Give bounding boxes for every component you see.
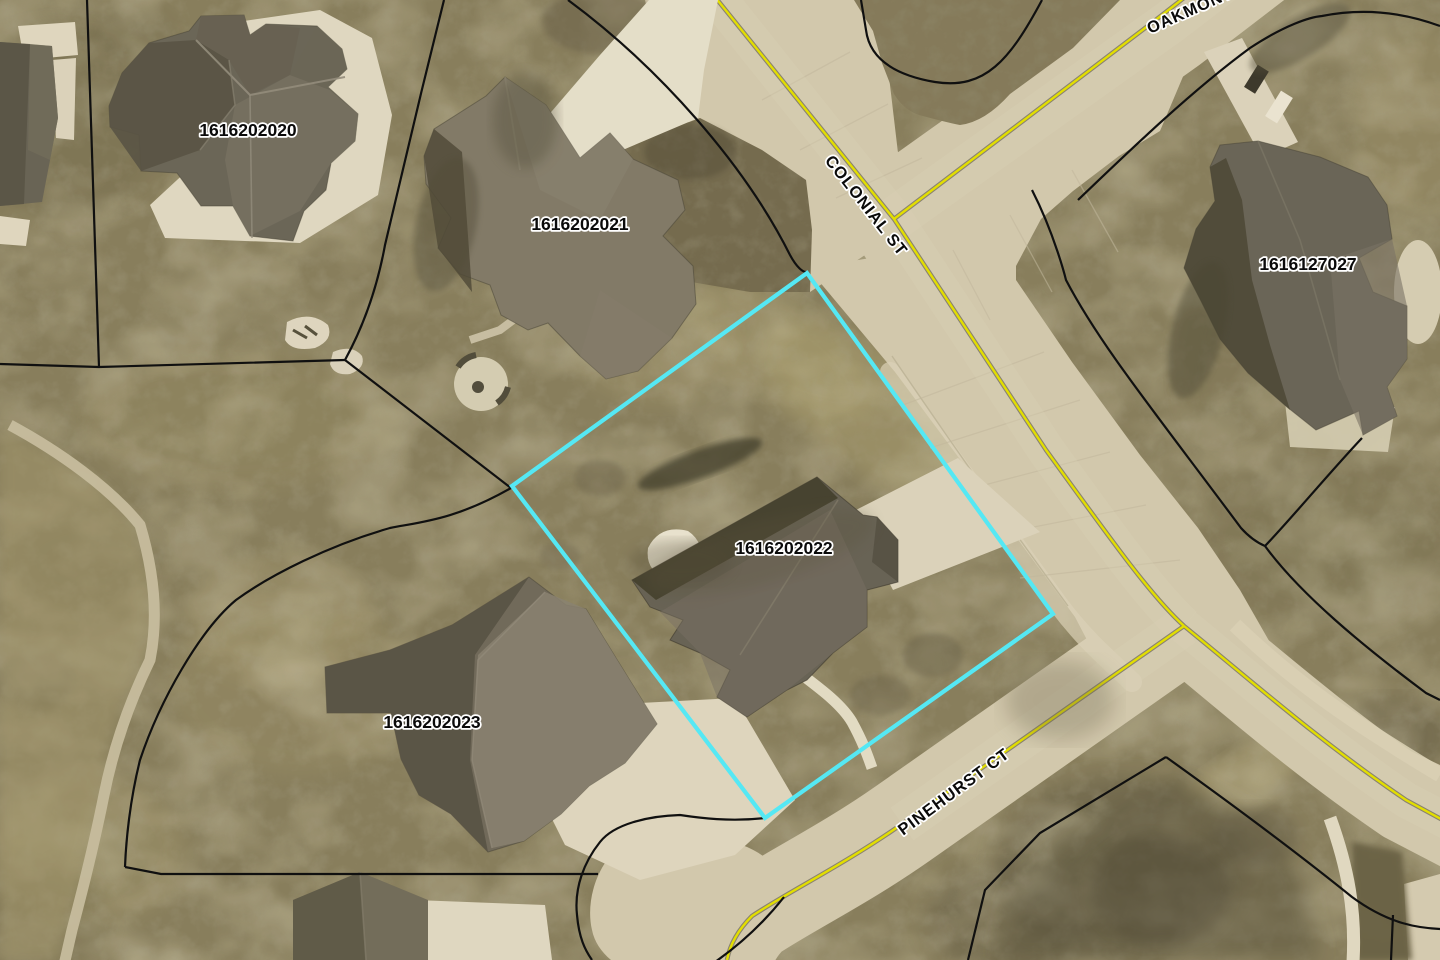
svg-text:1616127027: 1616127027 <box>1259 254 1356 274</box>
svg-text:1616202020: 1616202020 <box>199 120 297 140</box>
svg-text:1616202022: 1616202022 <box>735 538 833 558</box>
svg-text:1616202021: 1616202021 <box>531 214 629 234</box>
svg-text:1616202023: 1616202023 <box>383 712 481 732</box>
